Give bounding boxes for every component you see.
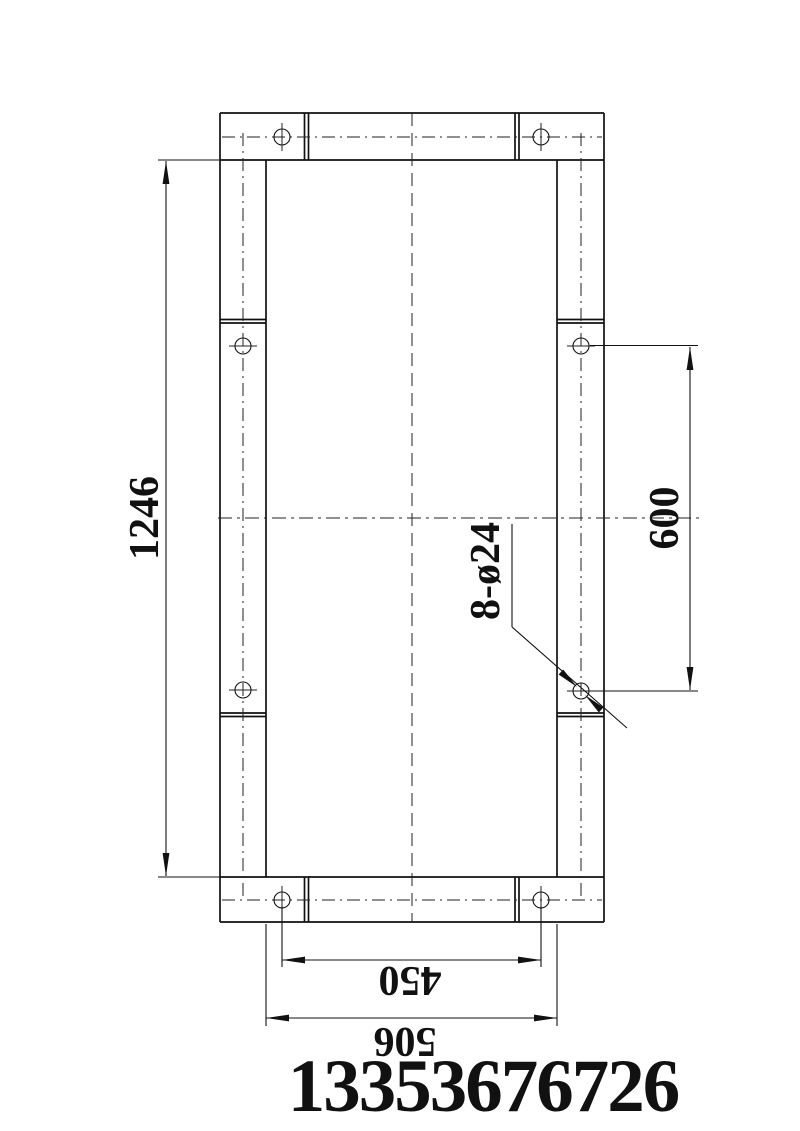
engineering-drawing: 1246 600 8-ø24 450 506 13353676726 [0,0,800,1131]
center-lines [218,113,700,922]
dim-label-1246: 1246 [122,476,168,560]
dim-label-450: 450 [379,957,442,1003]
hole-callout-leader: 8-ø24 [463,522,627,728]
dim-overall-height: 1246 [122,160,220,877]
phone-number: 13353676726 [288,1045,679,1128]
callout-label-8-d24: 8-ø24 [463,522,509,620]
dim-label-600: 600 [642,487,688,550]
drawing-canvas: 1246 600 8-ø24 450 506 13353676726 [0,0,800,1131]
